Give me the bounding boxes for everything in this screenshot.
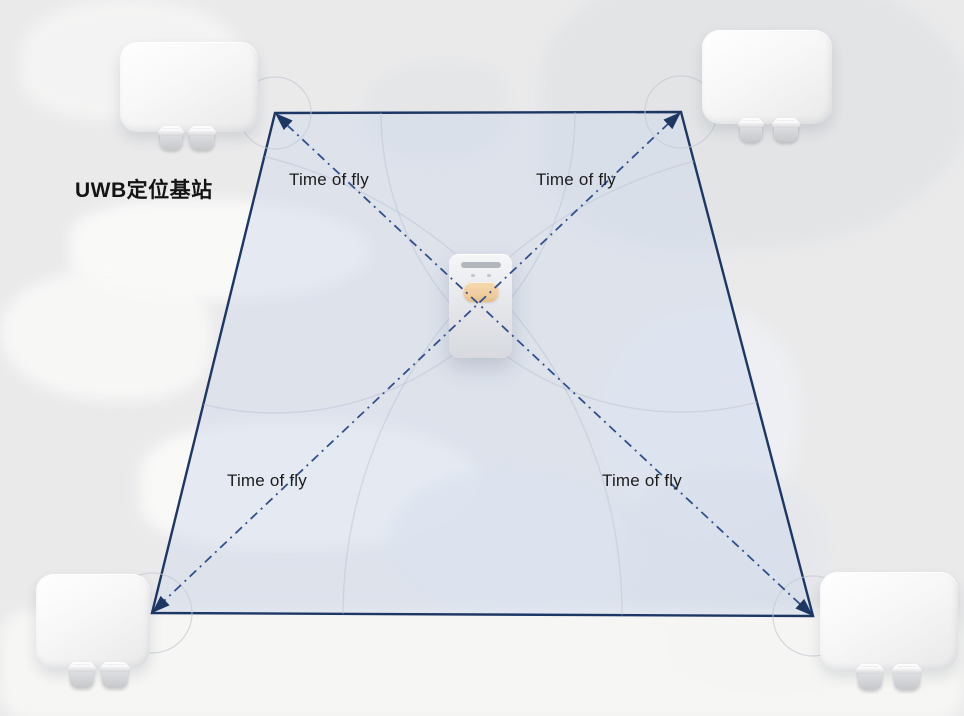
tof-label-bottom-left: Time of fly: [227, 471, 307, 491]
station-label: UWB定位基站: [75, 174, 213, 204]
tof-label-top-right: Time of fly: [536, 170, 616, 190]
tof-line-tl-br: [287, 125, 801, 605]
arrow-bottom-left-icon: [152, 596, 170, 613]
tof-line-tr-bl: [164, 123, 669, 601]
tof-label-top-left: Time of fly: [289, 170, 369, 190]
tof-diagonals: [0, 0, 964, 716]
uwb-positioning-diagram: UWB定位基站 Time of fly Time of fly Time of …: [0, 0, 964, 716]
tof-label-bottom-right: Time of fly: [602, 471, 682, 491]
